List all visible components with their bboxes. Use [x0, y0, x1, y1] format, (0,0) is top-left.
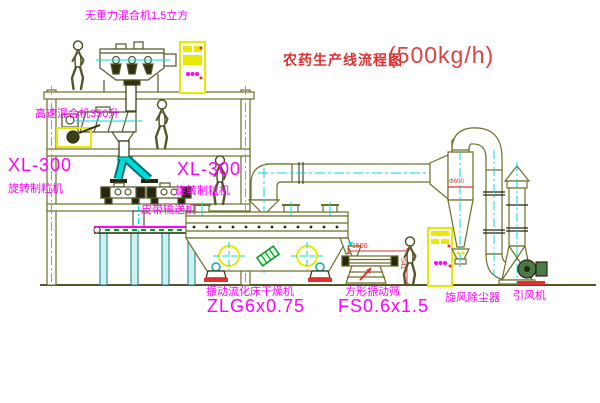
- label-granulator-left-name: 旋转制粒机: [8, 184, 63, 195]
- dim-screen-length: 1500: [352, 243, 368, 250]
- granulator-left: [101, 183, 145, 204]
- y-splitter-chute: [110, 157, 158, 183]
- control-cabinet-top: [180, 42, 205, 93]
- duct-elbow: [251, 164, 292, 200]
- control-cabinet-right: [428, 228, 452, 286]
- label-belt-conveyor: 皮带输送机: [141, 205, 196, 216]
- label-cyclone: 旋风除尘器: [445, 293, 500, 304]
- label-dryer-model: ZLG6x0.75: [207, 297, 305, 315]
- dim-cyclone-diameter: Φ600: [449, 179, 464, 185]
- induced-draft-fan: [517, 260, 547, 285]
- label-fan: 引风机: [513, 291, 546, 302]
- page-title: 农药生产线流程图: [283, 53, 403, 67]
- fluid-bed-dryer: [186, 202, 354, 282]
- person-figure-roof: [72, 41, 84, 89]
- person-figure-mixer-floor: [156, 100, 168, 148]
- label-granulator-left-model: XL-300: [8, 156, 72, 174]
- label-granulator-right-name: 旋转制粒机: [175, 186, 230, 197]
- label-mid-mixer: 高速混合机350升: [35, 109, 119, 120]
- label-granulator-right-model: XL-300: [177, 160, 241, 178]
- flow-diagram-canvas: 无重力混合机1.5立方 高速混合机350升 XL-300 旋转制粒机 XL-30…: [0, 0, 600, 403]
- label-screen-model: FS0.6x1.5: [338, 297, 429, 315]
- page-title-capacity: (500kg/h): [388, 44, 494, 67]
- label-top-mixer: 无重力混合机1.5立方: [85, 11, 188, 22]
- dim-screen-height: 541: [399, 258, 406, 270]
